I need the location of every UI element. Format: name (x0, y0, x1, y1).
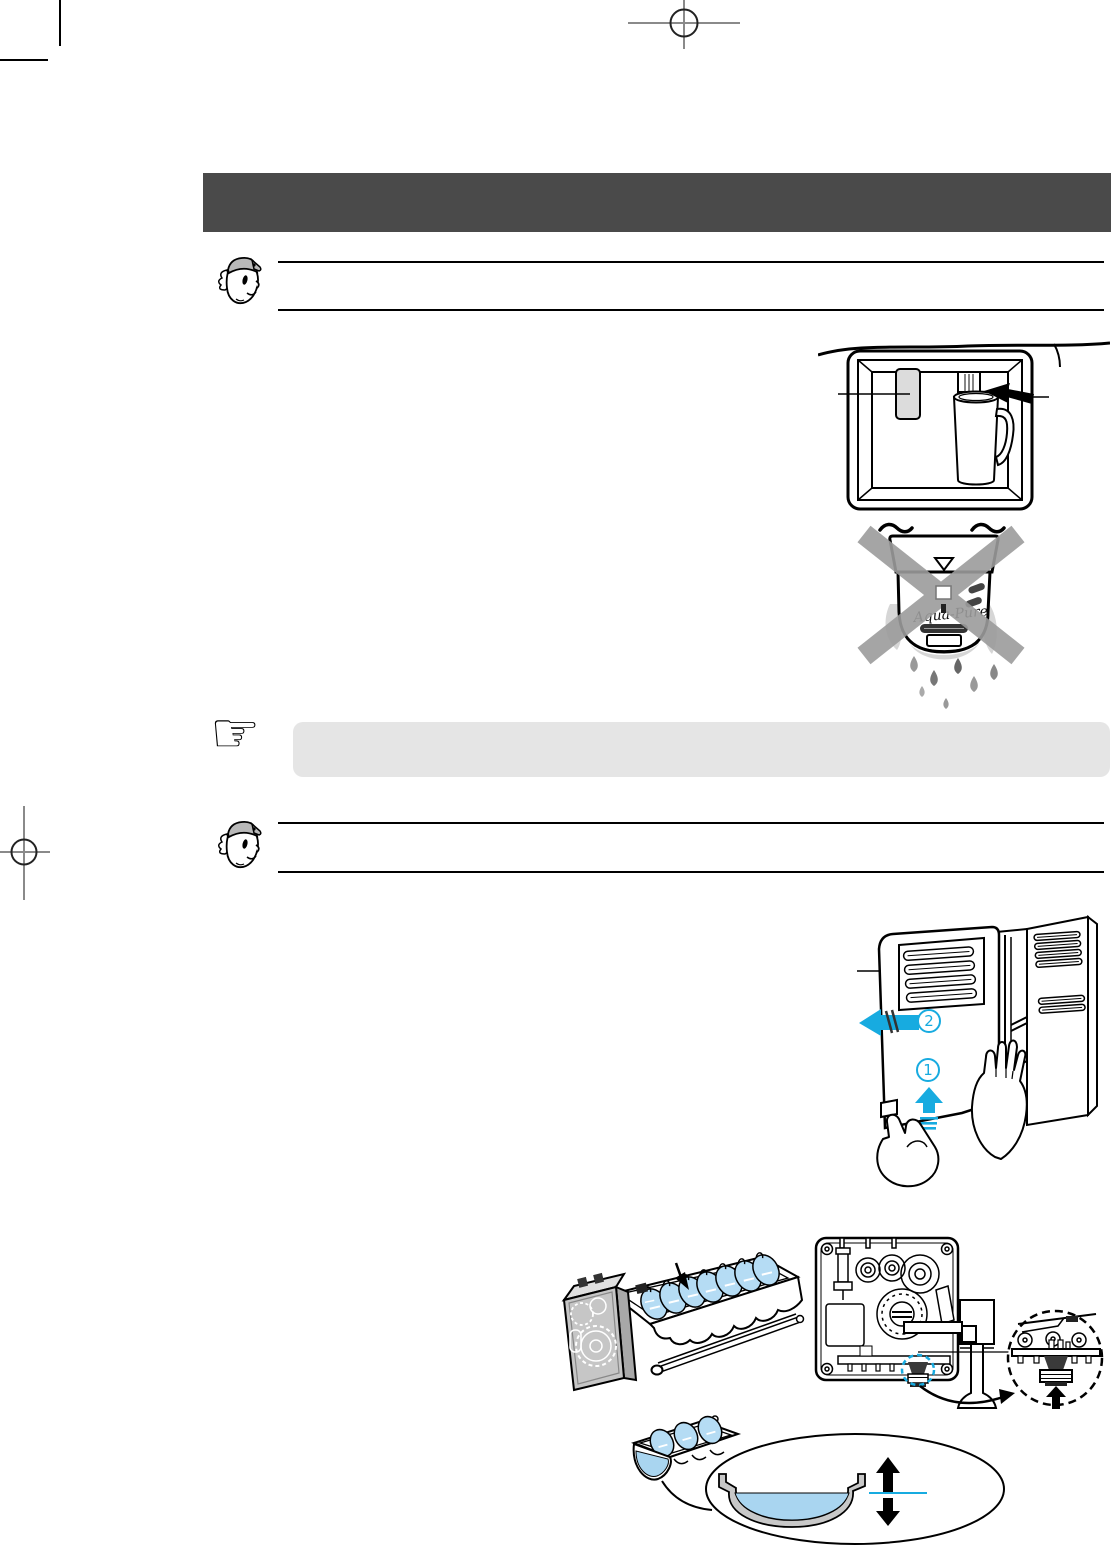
mascot-face-icon (216, 254, 268, 308)
tip-rule-top (278, 261, 1104, 263)
cover-removal-illustration (845, 905, 1111, 1200)
tip-rule-top (278, 822, 1104, 824)
filter-lock-window (936, 586, 951, 599)
registration-mark-top-icon (628, 0, 740, 50)
crop-mark-top-left-horizontal (0, 59, 48, 61)
step-1-badge: 1 (916, 1058, 940, 1082)
water-dispenser-illustration (818, 333, 1110, 515)
tip-rule-bottom (278, 309, 1104, 311)
water-filter-prohibited-illustration: Aqua-Pure (852, 512, 1067, 712)
registration-mark-left-icon (0, 806, 52, 900)
crop-mark-top-left-vertical (59, 0, 61, 46)
mechanism-panel (816, 1238, 976, 1380)
pointing-hand-icon: ☞ (210, 706, 260, 762)
support-bracket (958, 1300, 996, 1408)
water-level-illustration (622, 1413, 1012, 1547)
mechanism-illustration (808, 1228, 1111, 1418)
step-2-badge: 2 (917, 1009, 941, 1033)
bubble-connector (662, 1481, 712, 1510)
mascot-face-icon (216, 818, 268, 872)
ice-maker-assembly-illustration (558, 1230, 808, 1395)
water-drop-icons (910, 656, 998, 709)
note-box (293, 722, 1110, 777)
tip-rule-bottom (278, 871, 1104, 873)
manual-page: Aqua-Pure ☞ (0, 0, 1111, 1547)
magnified-screw-view (1008, 1311, 1102, 1409)
filter-lock-pin (941, 604, 946, 613)
section-header-bar (203, 173, 1111, 232)
